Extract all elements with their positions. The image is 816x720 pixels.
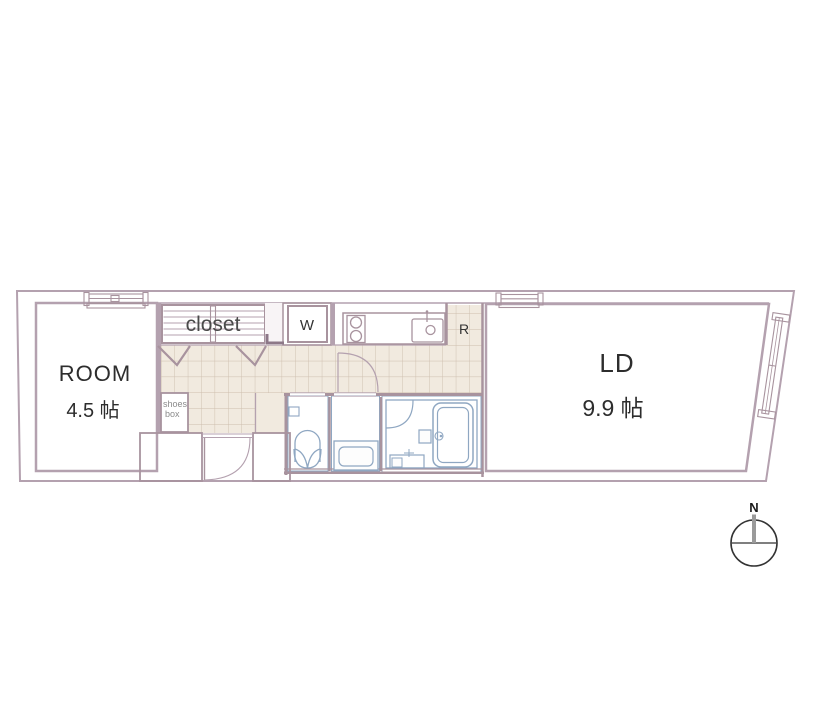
kitchen-sink [412,319,443,342]
entrance [140,433,290,481]
room-floor [36,303,157,471]
refrigerator-label: R [459,321,469,337]
washing-machine-label: W [300,317,315,334]
toilet-paper-holder [289,407,299,416]
bath-faucet-icon [404,449,414,457]
burner-icon [351,317,362,328]
window-top-center [496,293,543,308]
bath-stool [392,458,402,467]
entrance-door-swing [205,438,251,480]
window-top-left [84,293,148,309]
ld-floor [486,304,769,471]
toilet [289,407,321,468]
window-right [758,313,790,419]
washing-machine-niche [265,303,331,345]
kitchen-counter [331,303,445,345]
room-label: ROOM [59,361,131,386]
shoes-box: shoes box [161,393,188,432]
faucet-icon [426,310,435,334]
shoes-box-label-2: box [165,409,180,419]
tub-drain-dot [440,435,443,438]
bathroom-door-swing [386,401,413,429]
bathroom [386,401,473,469]
burner-icon [351,331,362,342]
floor-plan-svg: shoes box N ROOM 4.5 帖 closet W R LD 9.9… [0,0,816,720]
closet-label: closet [186,313,241,336]
bathtub [433,403,473,467]
stove [347,316,365,343]
room-size-label: 4.5 帖 [66,399,119,422]
ld-size-label: 9.9 帖 [582,395,643,421]
entrance-wall-left [140,433,202,481]
wall-stub [331,303,335,345]
bathtub-inner [438,408,469,463]
shoes-box-label-1: shoes [163,399,188,409]
bath-shelf [419,430,431,443]
floor-plan-page: shoes box N ROOM 4.5 帖 closet W R LD 9.9… [0,0,816,720]
ld-label: LD [599,348,634,378]
compass: N [731,500,777,566]
compass-north-label: N [749,500,758,515]
